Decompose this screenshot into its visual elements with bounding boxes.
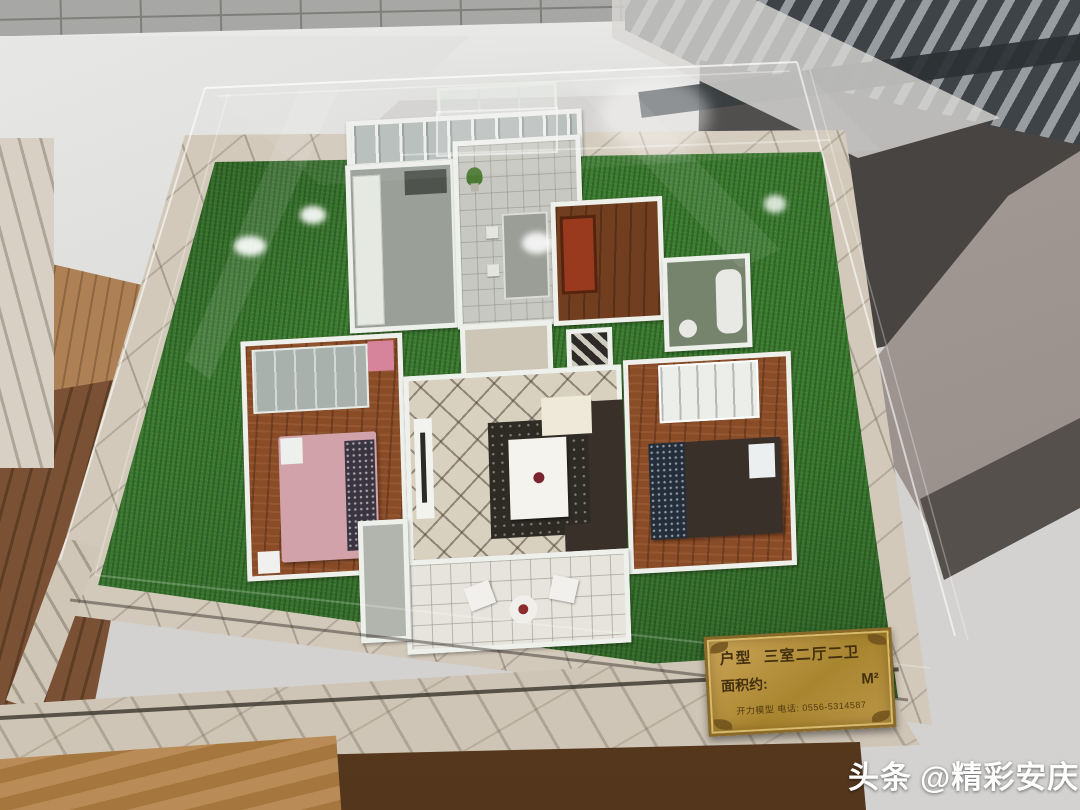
- plaque-maker-line: 开力模型 电话: 0556-5314587: [722, 697, 880, 718]
- model-info-plaque: 户型 三室二厅二卫 面积约: M² 开力模型 电话: 0556-5314587: [704, 627, 897, 737]
- coffee-table: [508, 437, 568, 520]
- plaque-area-label: 面积约:: [721, 674, 769, 696]
- patio-chair: [464, 580, 497, 612]
- patio-table-item: [518, 604, 528, 615]
- patio-table: [509, 594, 538, 624]
- sofa-chaise: [541, 395, 592, 436]
- watermark: 头条@精彩安庆: [848, 752, 1079, 797]
- patio-chair: [548, 575, 578, 603]
- bed-pillow: [748, 443, 775, 478]
- pink-wall-decor: [367, 340, 394, 371]
- tv-screen: [420, 432, 427, 502]
- plaque-area-line: 面积约: M²: [721, 668, 880, 696]
- table-centerpiece: [533, 472, 544, 484]
- dining-chair: [486, 226, 498, 239]
- room-bedroom-master: [623, 351, 797, 574]
- plant-pot: [471, 183, 479, 191]
- watermark-handle: @精彩安庆: [920, 760, 1079, 795]
- kitchen-island: [404, 169, 447, 195]
- room-living: [403, 364, 626, 566]
- dining-chair: [487, 264, 499, 277]
- room-kitchen: [345, 159, 460, 333]
- photo-scene: 户型 三室二厅二卫 面积约: M² 开力模型 电话: 0556-5314587 …: [0, 0, 1080, 810]
- plaque-area-unit: M²: [861, 670, 879, 688]
- tv-cabinet: [414, 418, 435, 519]
- plaque-ornament: [714, 719, 733, 731]
- watermark-brand: 头条: [848, 760, 912, 795]
- room-bedroom-small: [550, 196, 666, 326]
- bathtub: [715, 269, 743, 334]
- plaque-ornament: [872, 710, 891, 722]
- wardrobe: [252, 344, 370, 414]
- kitchen-counter: [352, 175, 384, 327]
- floorplan-model: [228, 96, 809, 668]
- master-bed: [648, 437, 783, 540]
- bed-pillow: [280, 437, 303, 464]
- bathroom-sink: [679, 319, 698, 338]
- room-bathroom: [662, 253, 753, 352]
- room-front-balcony: [405, 548, 631, 654]
- marble-column-left: [0, 138, 54, 468]
- plaque-layout-value: 三室二厅二卫: [763, 641, 860, 667]
- bed-bolster: [648, 442, 687, 540]
- plaque-layout-line: 户型 三室二厅二卫: [719, 640, 878, 669]
- room-utility: [358, 519, 412, 644]
- nightstand: [258, 551, 281, 574]
- red-door: [560, 215, 598, 295]
- dining-table: [502, 211, 550, 300]
- white-wardrobe: [658, 360, 760, 424]
- sofa: [587, 399, 627, 541]
